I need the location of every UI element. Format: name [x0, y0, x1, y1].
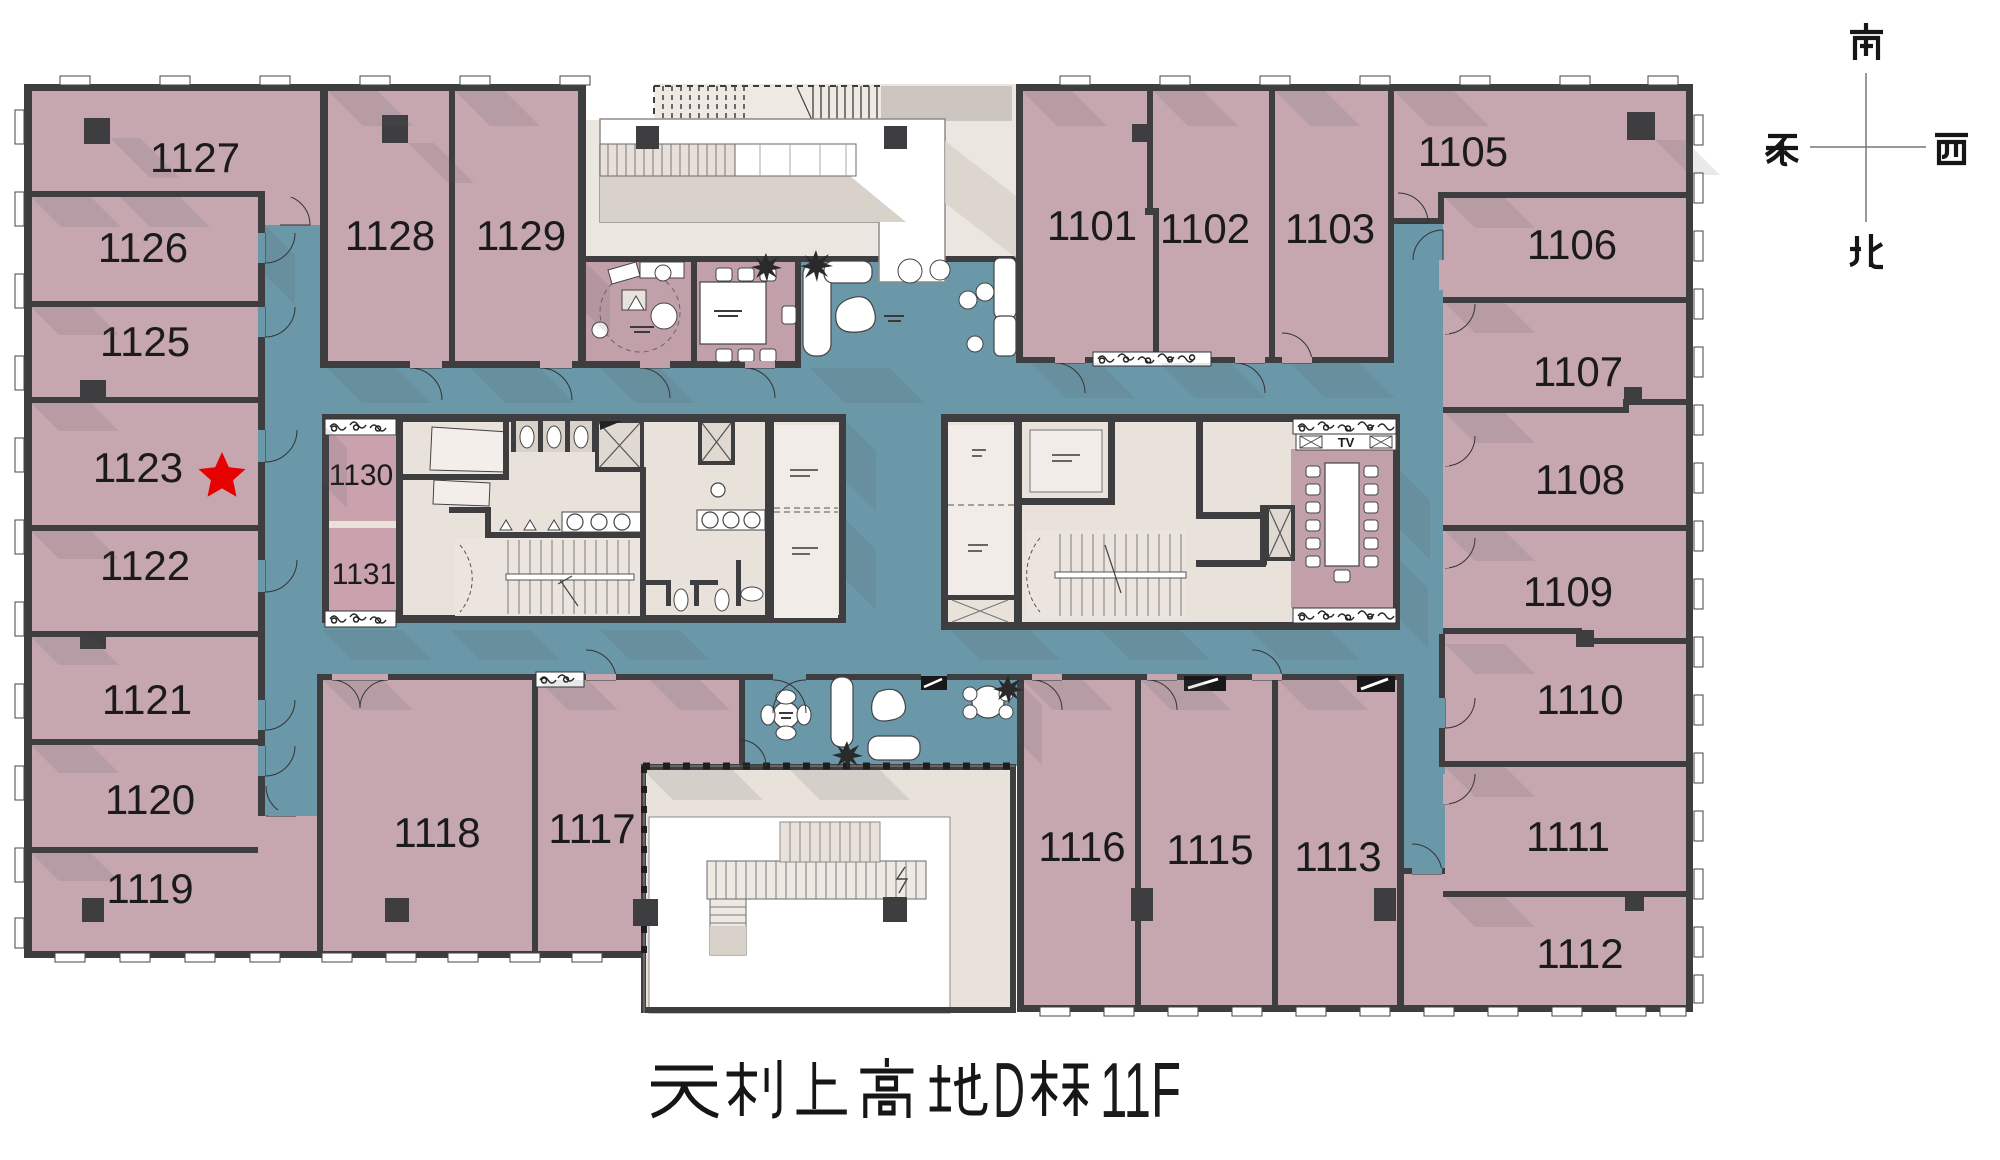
svg-text:1118: 1118 — [393, 809, 480, 856]
svg-text:1116: 1116 — [1038, 823, 1125, 870]
svg-text:1122: 1122 — [100, 542, 190, 589]
svg-text:1113: 1113 — [1294, 833, 1381, 880]
svg-text:1106: 1106 — [1527, 221, 1617, 268]
svg-text:1117: 1117 — [548, 805, 635, 852]
svg-text:1109: 1109 — [1523, 568, 1613, 615]
svg-text:1129: 1129 — [476, 212, 566, 259]
svg-text:1107: 1107 — [1533, 348, 1623, 395]
svg-text:1102: 1102 — [1160, 205, 1250, 252]
svg-text:11F: 11F — [1100, 1046, 1181, 1134]
svg-text:1111: 1111 — [1526, 813, 1610, 860]
svg-text:1110: 1110 — [1536, 676, 1623, 723]
svg-text:1115: 1115 — [1166, 826, 1253, 873]
svg-text:1120: 1120 — [105, 776, 195, 823]
svg-text:1103: 1103 — [1285, 205, 1375, 252]
svg-text:1123: 1123 — [93, 444, 183, 491]
svg-text:1126: 1126 — [98, 224, 188, 271]
svg-text:TV: TV — [1338, 435, 1355, 450]
svg-text:1128: 1128 — [345, 212, 435, 259]
svg-text:1125: 1125 — [100, 318, 190, 365]
svg-text:1131: 1131 — [332, 558, 397, 591]
svg-text:1119: 1119 — [106, 865, 193, 912]
svg-text:D: D — [993, 1046, 1025, 1134]
svg-text:1108: 1108 — [1535, 456, 1625, 503]
svg-text:1101: 1101 — [1047, 202, 1137, 249]
svg-text:1112: 1112 — [1536, 930, 1623, 977]
svg-text:1105: 1105 — [1418, 128, 1508, 175]
svg-text:1121: 1121 — [102, 676, 192, 723]
